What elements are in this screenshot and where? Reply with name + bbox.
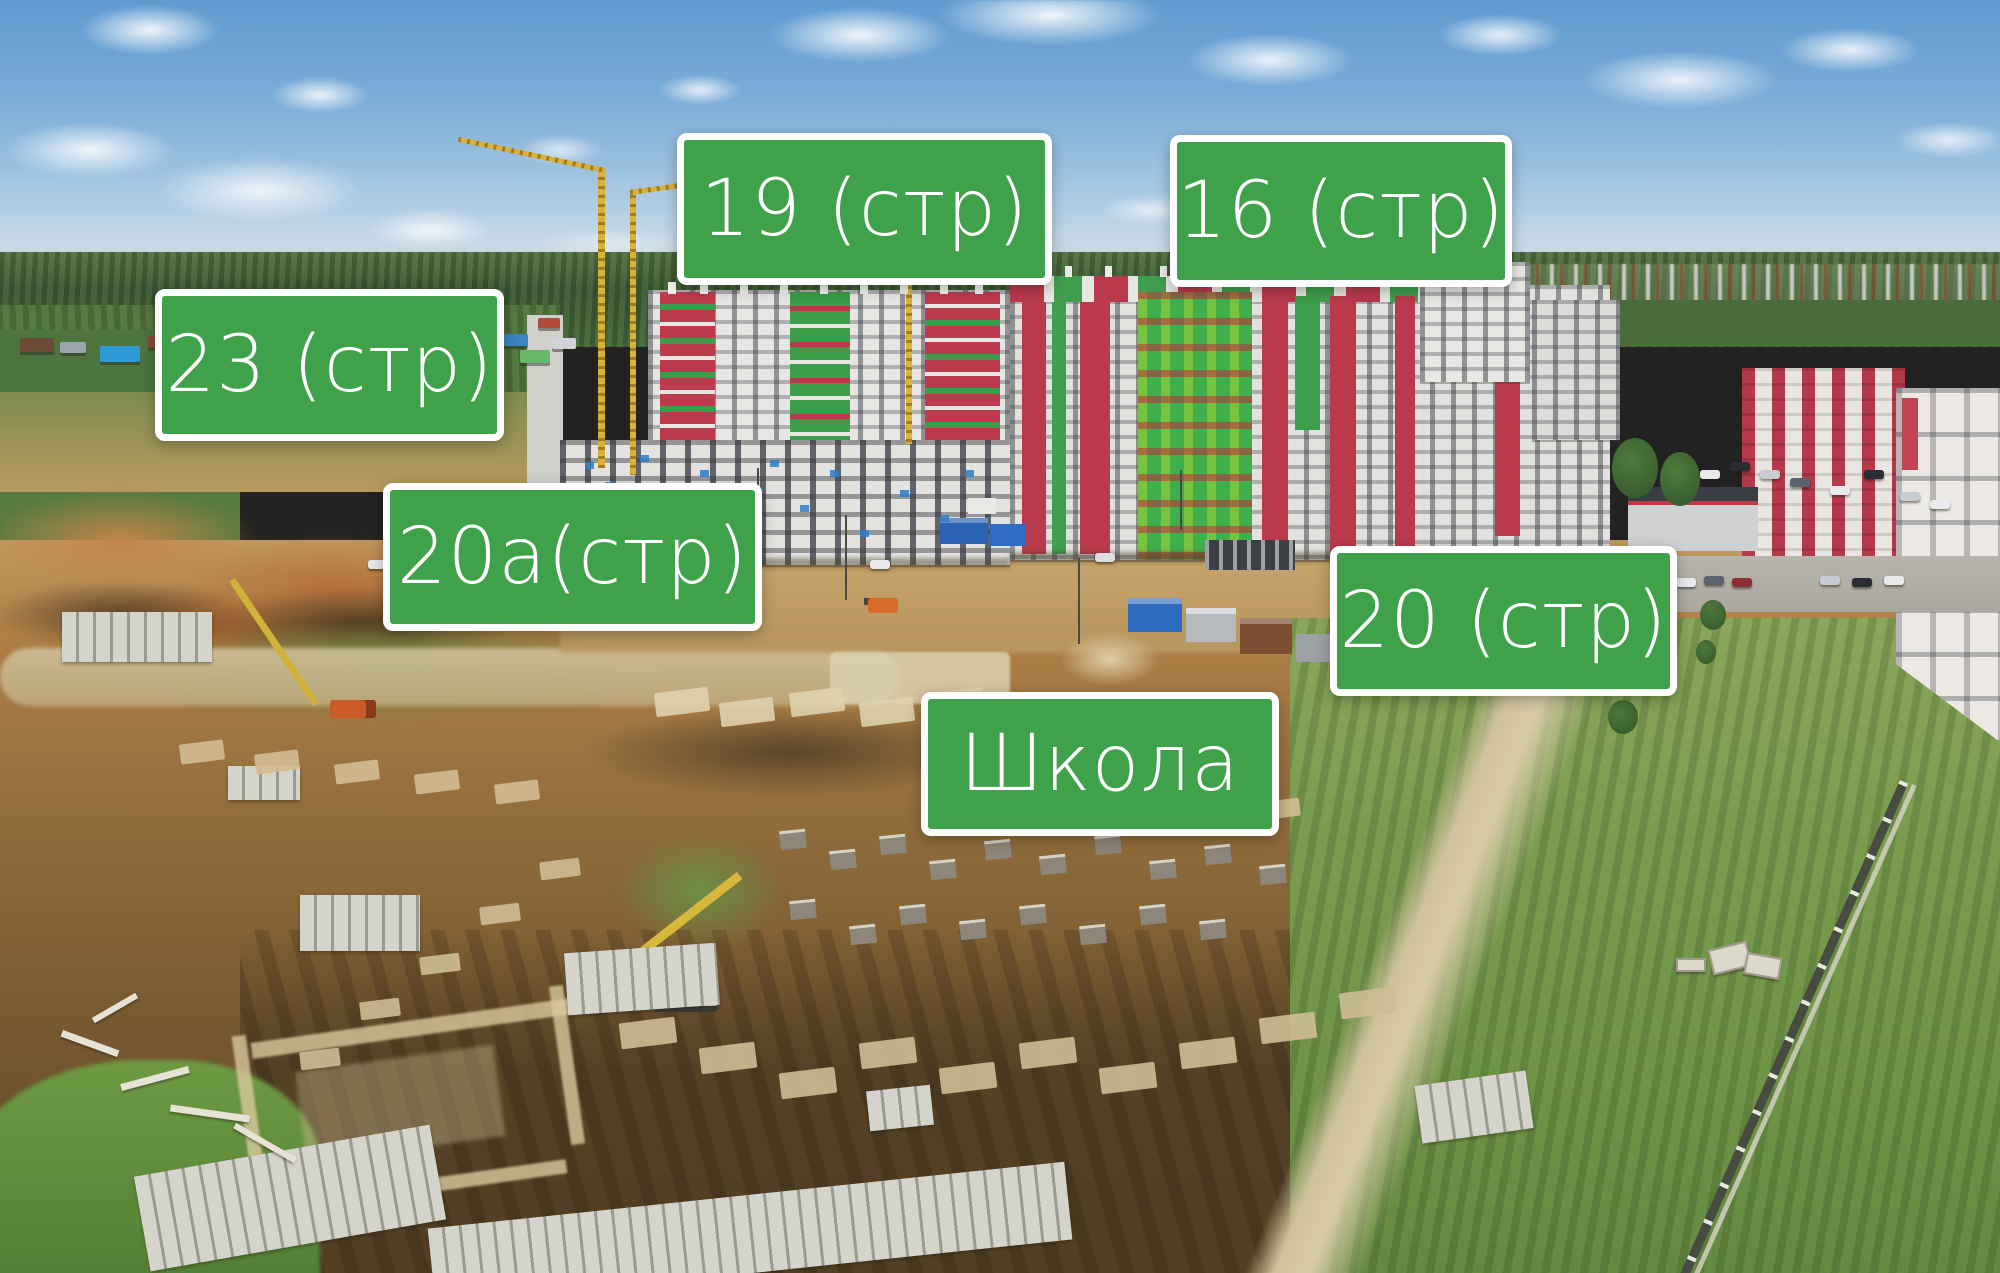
car: [1095, 553, 1115, 562]
village-house: [520, 350, 550, 363]
red-striped-tower-floors: [1742, 368, 1905, 560]
red-stripe: [1395, 296, 1415, 554]
village-house: [500, 334, 528, 346]
label-building-19: 19 (стр): [677, 133, 1052, 285]
rusty-cabin: [1240, 618, 1292, 654]
background-slab: [1532, 300, 1620, 440]
car: [1864, 470, 1884, 479]
blue-window: [900, 490, 909, 497]
car: [1790, 478, 1810, 487]
formwork-pad: [959, 919, 987, 941]
power-pole: [1078, 558, 1080, 644]
car: [1704, 576, 1724, 585]
excavator: [868, 598, 898, 613]
stacked-slabs: [1676, 958, 1706, 972]
red-stripe: [1022, 302, 1046, 554]
roof-vent: [1160, 266, 1167, 277]
label-school: Школа: [921, 692, 1279, 836]
blue-window: [700, 470, 709, 477]
village-house: [100, 346, 140, 362]
tree: [1612, 438, 1658, 498]
tree: [1608, 700, 1638, 734]
car: [1900, 492, 1920, 501]
car: [1732, 578, 1752, 587]
car: [1760, 470, 1780, 479]
red-balcony-column: [925, 292, 1000, 444]
sand-mound: [1040, 622, 1180, 696]
blue-window: [965, 470, 974, 477]
green-balcony-column: [790, 292, 850, 444]
tree: [1700, 600, 1726, 630]
village-house: [20, 338, 54, 352]
dark-building-base: [1205, 540, 1295, 570]
formwork-pad: [1139, 904, 1167, 926]
roof-vent: [1105, 266, 1112, 277]
car: [1930, 500, 1950, 509]
car: [1820, 576, 1840, 585]
blue-window: [770, 460, 779, 467]
formwork-pad: [779, 829, 807, 851]
car: [1730, 462, 1750, 471]
concrete-blocks: [300, 895, 420, 951]
grey-cabin: [1186, 608, 1236, 642]
red-stripe: [1080, 302, 1110, 554]
village-house: [60, 342, 86, 353]
red-balcony-column: [660, 292, 715, 444]
tree: [1660, 452, 1700, 506]
blue-window: [585, 462, 594, 469]
formwork-pad: [1199, 919, 1227, 941]
green-stripe: [1295, 296, 1320, 430]
formwork-pad: [789, 899, 817, 921]
formwork-pad: [984, 839, 1012, 861]
label-building-16: 16 (стр): [1170, 135, 1512, 287]
tower-crane-mast: [598, 168, 605, 468]
concrete-blocks: [62, 612, 212, 662]
concrete-blocks: [564, 943, 720, 1015]
village-house: [552, 338, 576, 349]
formwork-pad: [1079, 924, 1107, 946]
concrete-blocks: [866, 1085, 934, 1131]
formwork-pad: [829, 849, 857, 871]
car: [1830, 486, 1850, 495]
formwork-pad: [1094, 834, 1122, 856]
aerial-construction-photo: 19 (стр) 16 (стр) 23 (стр) 20а(стр) 20 (…: [0, 0, 2000, 1273]
formwork-pad: [879, 834, 907, 856]
label-building-20: 20 (стр): [1330, 546, 1677, 696]
white-cabin: [968, 498, 996, 514]
blue-window: [860, 530, 869, 537]
red-stripe: [1330, 296, 1356, 554]
blue-cabin: [1128, 598, 1182, 632]
car: [1852, 578, 1872, 587]
formwork-pad: [1039, 854, 1067, 876]
power-pole: [1180, 470, 1182, 530]
formwork-pad: [1019, 904, 1047, 926]
blue-window: [800, 505, 809, 512]
power-pole: [845, 515, 847, 600]
car: [1676, 578, 1696, 587]
blue-window: [830, 470, 839, 477]
formwork-pad: [1149, 859, 1177, 881]
label-building-20a: 20а(стр): [383, 483, 762, 631]
formwork-pad: [899, 904, 927, 926]
red-window-column: [1902, 398, 1918, 470]
green-stripe: [1052, 302, 1066, 554]
formwork-pad: [929, 859, 957, 881]
roof-vent: [1065, 266, 1072, 277]
roof-vent: [668, 282, 676, 294]
red-stripe: [1262, 296, 1288, 554]
formwork-pad: [1259, 864, 1287, 886]
car: [1884, 576, 1904, 585]
label-building-23: 23 (стр): [155, 289, 504, 441]
village-house: [538, 318, 560, 328]
blue-window: [640, 455, 649, 462]
tree: [1696, 640, 1716, 664]
blue-window: [940, 515, 949, 522]
tower-crane-mast: [630, 195, 636, 475]
blue-container: [990, 524, 1026, 546]
crane-truck: [330, 700, 376, 718]
car: [870, 560, 890, 569]
formwork-pad: [1204, 844, 1232, 866]
green-mosaic-building: [1138, 292, 1252, 560]
formwork-pad: [849, 924, 877, 946]
car: [1700, 470, 1720, 479]
